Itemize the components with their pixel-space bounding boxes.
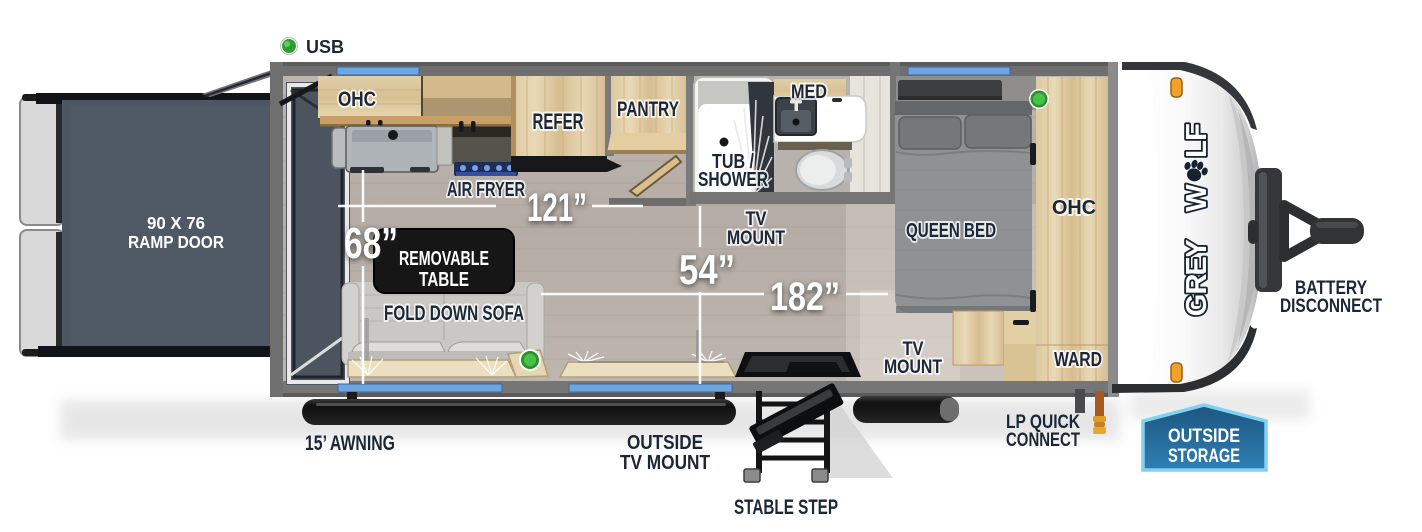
svg-text:REMOVABLE: REMOVABLE bbox=[399, 248, 489, 270]
svg-text:TV: TV bbox=[746, 209, 767, 230]
svg-text:STORAGE: STORAGE bbox=[1168, 446, 1240, 467]
svg-text:FOLD DOWN SOFA: FOLD DOWN SOFA bbox=[384, 302, 524, 325]
svg-text:DISCONNECT: DISCONNECT bbox=[1280, 296, 1382, 317]
svg-text:TABLE: TABLE bbox=[419, 269, 469, 291]
svg-text:MOUNT: MOUNT bbox=[727, 228, 785, 249]
svg-text:STABLE STEP: STABLE STEP bbox=[734, 496, 838, 519]
svg-text:TV MOUNT: TV MOUNT bbox=[620, 452, 710, 474]
svg-text:SHOWER: SHOWER bbox=[698, 169, 768, 191]
svg-text:PANTRY: PANTRY bbox=[617, 98, 679, 121]
svg-text:AIR FRYER: AIR FRYER bbox=[447, 179, 525, 201]
svg-text:OUTSIDE: OUTSIDE bbox=[627, 432, 703, 454]
svg-text:68”: 68” bbox=[344, 219, 398, 268]
svg-text:MOUNT: MOUNT bbox=[884, 357, 942, 378]
svg-text:REFER: REFER bbox=[533, 109, 584, 134]
svg-text:RAMP DOOR: RAMP DOOR bbox=[128, 232, 224, 252]
svg-text:15’ AWNING: 15’ AWNING bbox=[305, 432, 395, 455]
svg-text:182”: 182” bbox=[770, 275, 840, 319]
svg-text:CONNECT: CONNECT bbox=[1006, 430, 1080, 451]
svg-text:121”: 121” bbox=[527, 186, 587, 230]
svg-text:QUEEN BED: QUEEN BED bbox=[906, 220, 996, 242]
svg-text:90 X 76: 90 X 76 bbox=[147, 213, 205, 233]
svg-text:WARD: WARD bbox=[1054, 349, 1102, 371]
svg-text:OHC: OHC bbox=[338, 88, 376, 111]
svg-text:OUTSIDE: OUTSIDE bbox=[1168, 426, 1240, 447]
svg-text:54”: 54” bbox=[679, 246, 735, 293]
svg-text:MED: MED bbox=[791, 82, 827, 103]
svg-text:USB: USB bbox=[306, 37, 344, 57]
svg-text:OHC: OHC bbox=[1052, 197, 1096, 219]
